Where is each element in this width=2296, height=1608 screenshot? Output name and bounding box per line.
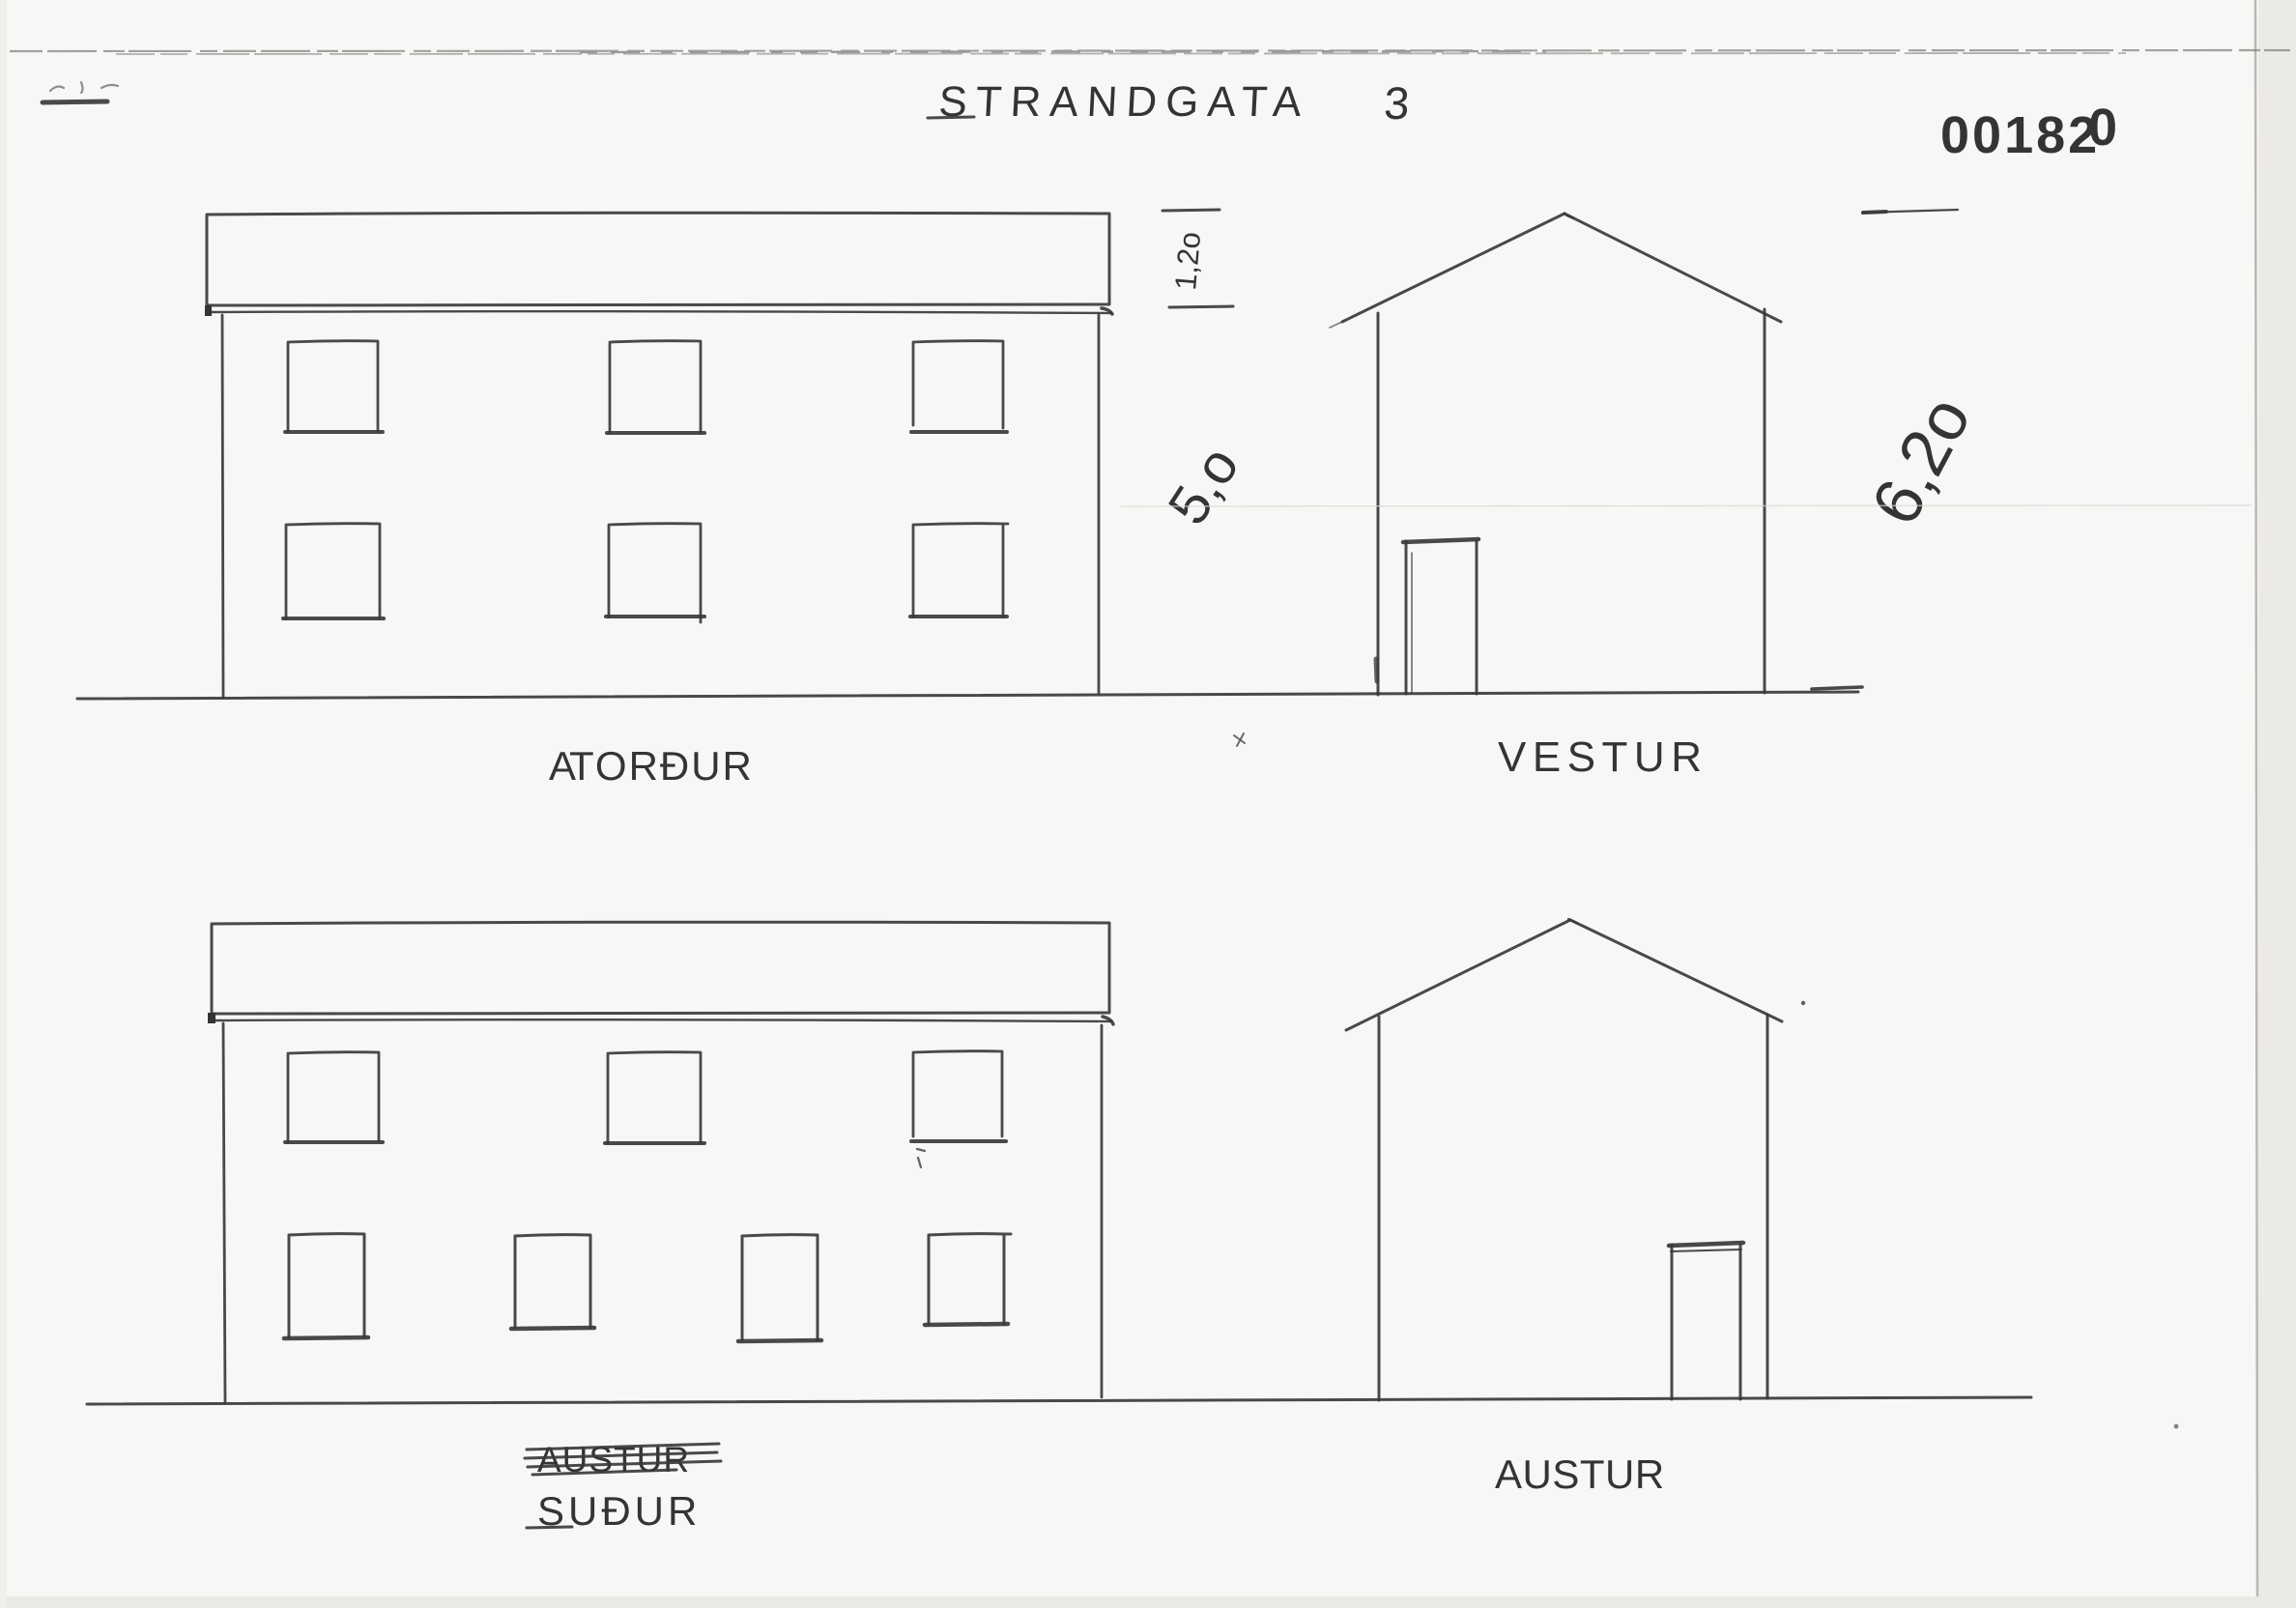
svg-text:00182: 00182	[1940, 106, 2100, 164]
svg-text:VESTUR: VESTUR	[1498, 733, 1708, 781]
svg-text:AUSTUR: AUSTUR	[1495, 1451, 1665, 1497]
svg-text:3: 3	[1383, 77, 1411, 129]
svg-text:TORÐUR: TORÐUR	[569, 743, 754, 789]
svg-text:1,2o: 1,2o	[1168, 230, 1207, 291]
svg-text:0: 0	[2088, 99, 2117, 157]
svg-text:STRANDGATA: STRANDGATA	[937, 78, 1311, 126]
